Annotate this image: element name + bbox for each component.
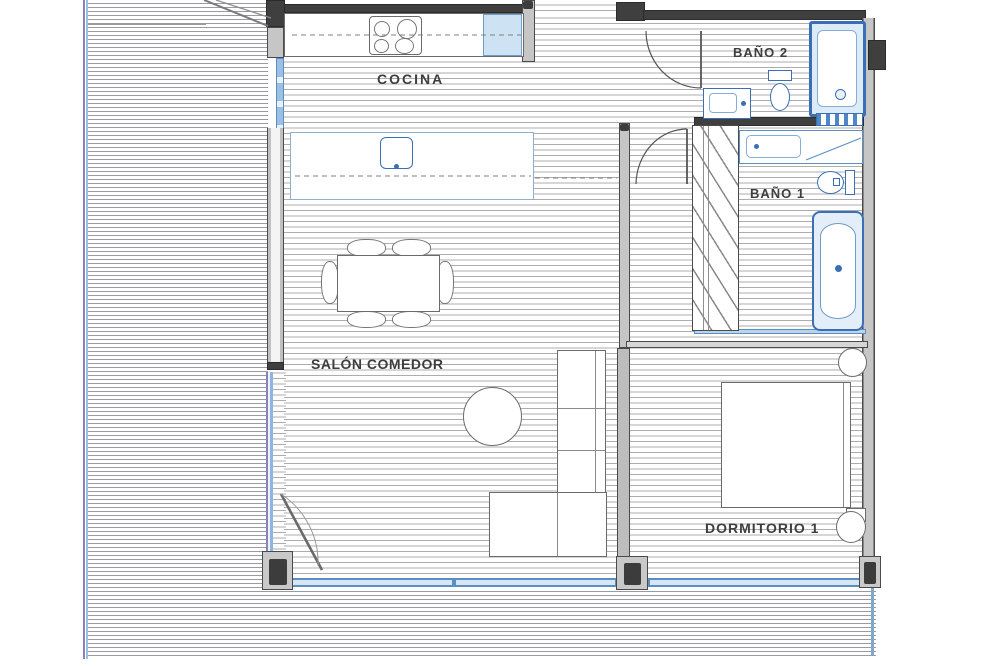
bed — [721, 382, 851, 508]
window-bedroom — [648, 578, 861, 587]
basin-bowl — [709, 93, 737, 113]
vent-grille — [816, 113, 863, 126]
wall-cap-salon — [267, 362, 284, 370]
toilet-flush-icon — [833, 178, 840, 186]
terrace-divider-line — [88, 23, 206, 25]
terrace-edge-left — [83, 0, 88, 659]
room-label-cocina: COCINA — [377, 71, 444, 87]
island-sink-icon — [380, 137, 413, 169]
glass-wall-salon — [266, 372, 273, 552]
faucet-icon — [741, 101, 746, 106]
floor-plan: COCINA SALÓN COMEDOR BAÑO 2 BAÑO 1 DORMI… — [0, 0, 1000, 666]
sofa-backrest-line — [595, 351, 596, 494]
sofa-seat — [557, 350, 606, 495]
column-right-stub — [868, 40, 886, 70]
salon-floor-patch — [272, 368, 286, 578]
post-window-right-core — [864, 562, 876, 584]
room-label-salon-comedor: SALÓN COMEDOR — [311, 356, 444, 372]
sofa-cushion-line — [557, 493, 558, 556]
room-label-bano1: BAÑO 1 — [750, 186, 805, 201]
toilet-tank — [768, 70, 792, 81]
dining-table — [337, 255, 440, 312]
toilet-bowl — [770, 83, 790, 111]
post-terrace-door-core — [269, 559, 287, 585]
nightstand — [836, 511, 866, 543]
closet — [692, 125, 739, 331]
stove-icon — [369, 16, 422, 55]
post-window-right — [859, 556, 881, 588]
toilet-tank — [845, 170, 855, 195]
glass-door-kitchen — [276, 58, 284, 130]
post-top-middle — [616, 2, 645, 21]
entry-floor-strip — [535, 0, 616, 14]
terrace-floor-bottom — [268, 588, 876, 658]
burner-icon — [374, 39, 389, 53]
vanity-counter — [739, 130, 863, 164]
terrace-floor-left — [86, 0, 268, 658]
room-label-dormitorio1: DORMITORIO 1 — [705, 520, 819, 536]
faucet-icon — [394, 164, 399, 169]
nightstand — [838, 348, 867, 377]
window-salon-left — [291, 578, 454, 587]
burner-icon — [395, 38, 414, 54]
faucet-icon — [754, 144, 759, 149]
exterior-white-top — [645, 0, 876, 10]
kitchen-appliance — [483, 14, 522, 56]
dining-chair — [347, 311, 386, 328]
post-terrace-door — [262, 551, 293, 590]
wall-bedroom-top — [626, 341, 868, 348]
post-kitchen-left-top — [266, 0, 285, 27]
wall-bano2-top — [643, 10, 866, 20]
faucet-icon — [835, 265, 842, 272]
post-window-middle — [616, 556, 648, 590]
sofa-chaise — [489, 492, 607, 557]
burner-icon — [397, 19, 417, 39]
sofa-cushion-line — [558, 450, 605, 451]
wall-kitchen-left-lower — [267, 128, 284, 368]
terrace-edge-right — [871, 587, 874, 655]
toilet-icon — [817, 169, 856, 196]
washbasin — [703, 88, 751, 119]
room-label-bano2: BAÑO 2 — [733, 45, 788, 60]
wall-corridor-cap — [620, 124, 629, 131]
wall-salon-bedroom — [617, 348, 630, 558]
wall-kitchen-left-upper — [267, 27, 284, 58]
wall-corridor — [619, 123, 630, 348]
shower — [809, 21, 866, 117]
wall-kitchen-right-cap — [523, 1, 533, 9]
headboard-line — [843, 383, 844, 507]
dining-chair — [392, 311, 431, 328]
burner-icon — [374, 21, 390, 37]
window-salon-right — [454, 578, 617, 587]
post-window-middle-core — [624, 563, 641, 585]
shower-drain-icon — [835, 89, 846, 100]
wall-kitchen-top — [284, 4, 530, 13]
bathtub — [812, 211, 864, 331]
closet-divider — [703, 126, 709, 330]
sofa-cushion-line — [558, 408, 605, 409]
coffee-table — [463, 387, 522, 446]
toilet-icon — [767, 70, 794, 113]
